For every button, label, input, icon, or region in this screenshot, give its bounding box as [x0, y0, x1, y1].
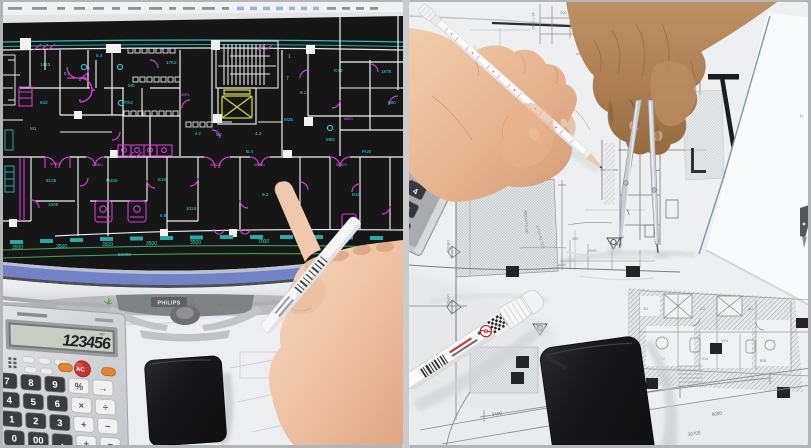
svg-text:M1: M1 — [30, 126, 37, 131]
svg-text:9: 9 — [52, 380, 58, 391]
svg-text:M150: M150 — [106, 178, 118, 183]
svg-text:PHILIPS: PHILIPS — [157, 301, 180, 307]
svg-text:B1: B1 — [644, 307, 648, 311]
svg-text:M2: M2 — [748, 307, 753, 311]
svg-text:0: 0 — [12, 433, 18, 444]
svg-text:6.8: 6.8 — [160, 213, 167, 218]
svg-text:B18: B18 — [352, 192, 361, 197]
svg-text:8.1: 8.1 — [300, 90, 307, 95]
svg-text:E14: E14 — [702, 357, 708, 361]
svg-text:1413: 1413 — [40, 62, 51, 67]
svg-text:1024: 1024 — [186, 206, 197, 211]
svg-text:1009: 1009 — [48, 202, 59, 207]
svg-text:AC: AC — [76, 367, 85, 374]
svg-text:860: 860 — [388, 100, 396, 105]
svg-text:3: 3 — [57, 418, 63, 429]
svg-text:1: 1 — [9, 414, 15, 425]
svg-text:7: 7 — [286, 76, 289, 82]
svg-text:49 7.2 M2: 49 7.2 M2 — [531, 12, 536, 31]
svg-text:842: 842 — [40, 100, 48, 105]
svg-text:7: 7 — [4, 376, 10, 387]
svg-text:×: × — [78, 401, 84, 412]
svg-text:4.2: 4.2 — [700, 307, 705, 311]
svg-text:3500: 3500 — [190, 240, 201, 246]
svg-text:8125: 8125 — [46, 178, 57, 183]
svg-text:1: 1 — [288, 54, 291, 60]
svg-text:E10: E10 — [158, 177, 167, 182]
svg-text:56008: 56008 — [118, 252, 131, 257]
svg-text:M021: M021 — [344, 117, 353, 121]
svg-text:3500: 3500 — [102, 242, 113, 248]
svg-text:2000: 2000 — [588, 249, 596, 253]
svg-text:7000: 7000 — [258, 239, 269, 245]
svg-text:5: 5 — [31, 397, 37, 408]
svg-text:−: − — [105, 421, 111, 432]
svg-text:M0821: M0821 — [50, 162, 61, 166]
svg-text:2: 2 — [33, 416, 39, 427]
svg-text:9.2: 9.2 — [262, 192, 269, 197]
svg-text:M0821: M0821 — [336, 163, 347, 167]
svg-text:1876: 1876 — [381, 69, 392, 74]
svg-text:h: h — [800, 114, 803, 120]
svg-text:M0821: M0821 — [92, 163, 103, 167]
svg-text:8: 8 — [28, 378, 34, 389]
svg-text:M0R1: M0R1 — [180, 93, 190, 97]
svg-text:M25: M25 — [284, 117, 293, 122]
svg-text:3500: 3500 — [56, 244, 67, 250]
svg-text:KY8: KY8 — [334, 68, 343, 73]
svg-text:÷: ÷ — [103, 402, 108, 413]
svg-text:M0: M0 — [128, 83, 135, 88]
svg-text:4.2: 4.2 — [255, 131, 262, 136]
svg-text:4: 4 — [7, 395, 13, 406]
svg-text:3500: 3500 — [12, 245, 23, 251]
svg-text:3500: 3500 — [146, 241, 157, 247]
svg-text:8.4: 8.4 — [96, 53, 103, 58]
svg-text:LVF501: LVF501 — [446, 294, 450, 306]
svg-text:M0: M0 — [100, 332, 105, 336]
svg-text:+: + — [81, 420, 87, 431]
svg-text:6: 6 — [55, 399, 61, 410]
svg-text:M0821: M0821 — [210, 163, 221, 167]
svg-text:B.4: B.4 — [246, 149, 253, 154]
svg-text:200: 200 — [572, 237, 578, 241]
svg-text:GRG01: GRG01 — [446, 240, 450, 252]
svg-text:%: % — [75, 381, 84, 393]
svg-text:200: 200 — [560, 10, 567, 15]
svg-text:M82: M82 — [326, 137, 335, 142]
svg-text:PU8: PU8 — [362, 149, 371, 154]
svg-text:M0821: M0821 — [254, 163, 265, 167]
svg-text:→: → — [98, 383, 108, 395]
svg-text:K01: K01 — [722, 339, 728, 343]
svg-text:17K2: 17K2 — [166, 60, 177, 65]
svg-text:4.2: 4.2 — [195, 131, 201, 136]
svg-text:B08: B08 — [760, 359, 766, 363]
